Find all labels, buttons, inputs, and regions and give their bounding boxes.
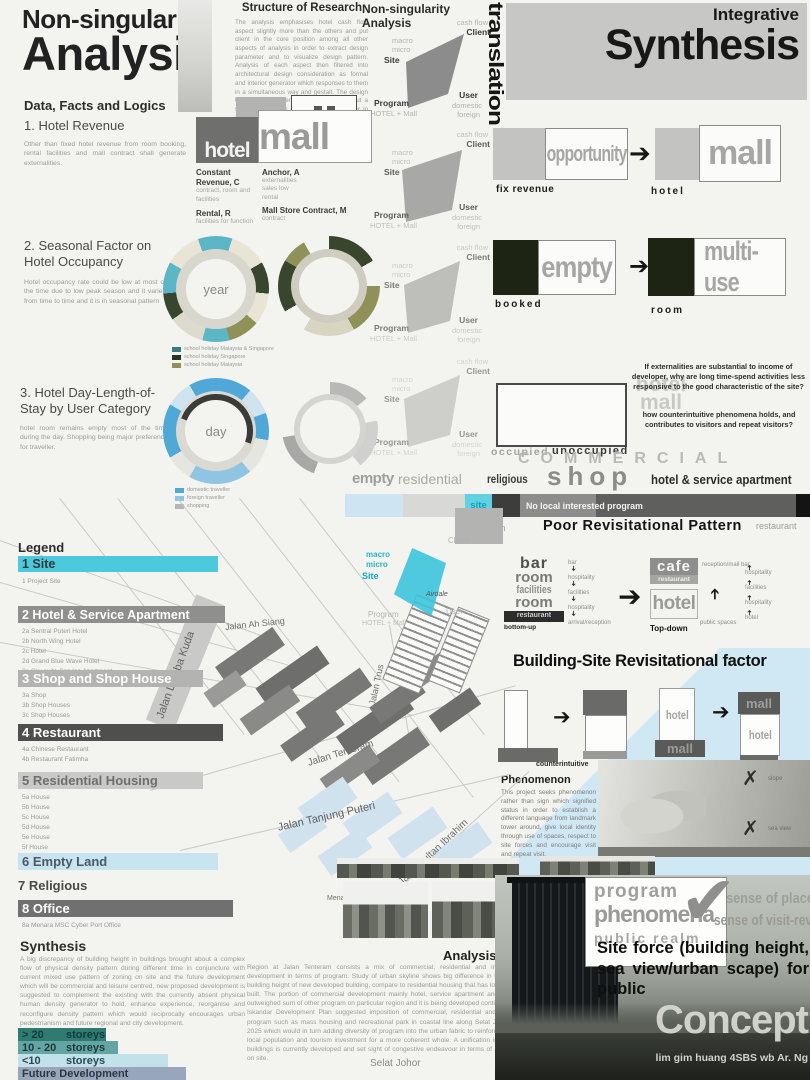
legend-sub: 5b House: [22, 803, 156, 813]
tower-diagram-1: [504, 690, 528, 750]
ns-label-foreign: foreign: [457, 222, 480, 231]
legend-row: school holiday Singapore: [172, 354, 274, 360]
hotel-stack-label: hotel: [666, 708, 689, 722]
s2-heading: 2. Seasonal Factor on Hotel Occupancy: [24, 238, 184, 271]
term-constant-revenue: Constant Revenue, C contract, room and f…: [196, 168, 256, 227]
x-label-2: sea view: [768, 826, 791, 832]
seasonal-ring-2: [278, 236, 380, 336]
arrow-icon: ➔: [712, 700, 730, 725]
legend-sub: 3b Shop Houses: [22, 701, 70, 711]
storey-range: Future Development: [22, 1068, 128, 1080]
ns-label-domestic: domestic: [452, 213, 482, 222]
ns-label-site: Site: [384, 280, 400, 290]
storey-unit: storeys: [66, 1055, 105, 1067]
ns-diagram-2: cash flow Client macro micro Site Progra…: [362, 130, 490, 236]
row1-sub-label: fix revenue: [496, 184, 554, 195]
arrow-down-icon: ➔: [570, 596, 577, 606]
day-ring-2: [282, 382, 378, 476]
legend-label: foreign traveller: [187, 495, 225, 501]
cafe-word: cafe: [650, 558, 698, 575]
ns-label-macro: macro: [392, 375, 413, 384]
ns-label-user: User: [459, 315, 478, 325]
reception-label: reception/mail bar: [702, 562, 750, 568]
term-desc: contract: [262, 215, 372, 222]
day-ring-2-hole: [294, 394, 366, 464]
hotel-block: hotel: [196, 117, 258, 163]
map-user-ghost: User: [446, 607, 463, 616]
storey-bar-over20: > 20storeys: [18, 1028, 106, 1041]
museum-curves: [616, 786, 706, 836]
tower-base-2: [583, 751, 627, 759]
legend-sub: 3c Shop Houses: [22, 711, 70, 721]
map-program-sub-ghost: HOTEL + Mall: [362, 620, 406, 627]
map-macro-label: macro: [366, 550, 390, 559]
legend-bar-restaurant: 4 Restaurant: [18, 724, 223, 741]
legend-bar-shop: 3 Shop and Shop House: [18, 670, 203, 687]
phenomenon-paragraph: This project seeks phenomenon rather tha…: [501, 789, 596, 860]
term-desc: externalities sales low rental: [262, 177, 304, 202]
ns-label-domestic: domestic: [452, 101, 482, 110]
program-bar: site No local interested program: [345, 494, 810, 517]
legend-sub: 5a House: [22, 793, 156, 803]
ns-label-cashflow: cash flow: [457, 243, 488, 252]
legend-bar-label: 6 Empty Land: [22, 854, 107, 869]
arrow-down-icon: ➔: [570, 566, 577, 576]
legend-swatch: [172, 363, 181, 368]
arrow-up-icon: ➔: [747, 591, 754, 601]
legend-bar-residential: 5 Residential Housing: [18, 772, 203, 789]
ns-label-program-sub: HOTEL + Mall: [370, 448, 417, 457]
storey-unit: storeys: [66, 1042, 105, 1054]
arrow-icon: ➔: [553, 705, 571, 730]
skyline-photo-strip: [337, 858, 519, 878]
row1-word-2: mall: [708, 134, 772, 173]
legend-row: domestic traveller: [175, 487, 230, 493]
hotel-block-label: hotel: [204, 139, 249, 163]
mall-stack-box: mall: [655, 740, 705, 757]
legend-sub: 2c Hotel: [22, 647, 112, 657]
ns-label-cashflow: cash flow: [457, 357, 488, 366]
map-client-ghost: Client: [448, 536, 468, 545]
mall-block-label: mall: [259, 120, 329, 153]
storey-bar-future: Future Development: [18, 1067, 186, 1080]
row2-sub-label: booked: [495, 299, 543, 310]
legend-sub: 2d Grand Blue Wave Hotel: [22, 657, 112, 667]
question-white-box: [496, 383, 627, 447]
legend-sub-list: 3a Shop 3b Shop Houses 3c Shop Houses: [22, 691, 70, 721]
year-ring-chart: year: [163, 236, 269, 342]
legend-label: domestic traveller: [187, 487, 230, 493]
hotel-stack-label-2: hotel: [749, 728, 772, 742]
legend-sub: 4a Chinese Restaurant: [22, 745, 89, 755]
arrow-down-icon: ➔: [570, 581, 577, 591]
legend-sub: 8a Menara MSC Cyber Port Office: [22, 921, 121, 931]
s3-paragraph: hotel room remains empty most of the tim…: [20, 424, 168, 452]
empty-word: empty: [352, 470, 394, 487]
concept-heading: Concept: [600, 998, 808, 1043]
legend-bar-label: 3 Shop and Shop House: [22, 671, 172, 686]
analysis-poster: Non-singularity Analysis Structure of Re…: [0, 0, 810, 1080]
row1-word: opportunity: [546, 141, 626, 167]
row1-word-box-2: mall: [699, 125, 781, 182]
ns-label-micro: micro: [392, 384, 410, 393]
legend-bar-label: 1 Site: [22, 557, 55, 571]
map-program-ghost: Program: [368, 610, 399, 619]
tall-building-photo: [178, 0, 212, 112]
no-local-label: No local interested program: [526, 501, 643, 511]
legend-label: school holiday Singapore: [184, 354, 245, 360]
integrative-synthesis-banner: Integrative Synthesis: [506, 3, 807, 100]
tower-cap-2: [583, 690, 627, 715]
day-ring-chart: day: [163, 378, 269, 484]
research-heading: Structure of Research: [235, 2, 369, 14]
legend-sub: 4b Restaurant Fatimha: [22, 755, 89, 765]
stack-word: facilities: [510, 585, 558, 595]
residential-word: residential: [398, 471, 462, 487]
poor-pattern-heading: Poor Revisitational Pattern: [543, 518, 742, 534]
ns-label-foreign: foreign: [457, 335, 480, 344]
arrow-down-icon: ➔: [570, 611, 577, 621]
row2-word-2: multi-use: [704, 236, 776, 298]
stack-word: room: [504, 596, 564, 610]
year-legend: school holiday Malaysia & Singapore scho…: [172, 346, 274, 370]
ns-label-micro: micro: [392, 157, 410, 166]
cafe-sub-word: restaurant: [650, 575, 698, 584]
ns-label-micro: micro: [392, 270, 410, 279]
ns-label-domestic: domestic: [452, 326, 482, 335]
ns-label-program-sub: HOTEL + Mall: [370, 109, 417, 118]
building-footprint: [429, 687, 481, 732]
hotel-word: hotel: [650, 589, 698, 619]
synthesis-heading: Synthesis: [20, 938, 86, 954]
row2-sub-label-2: room: [651, 305, 684, 316]
legend-sub: 5e House: [22, 833, 156, 843]
ns-label-program: Program: [374, 323, 409, 333]
legend-bar-label: 4 Restaurant: [22, 725, 101, 740]
mall-stack-label-2: mall: [746, 696, 772, 711]
site-force-statement: Site force (building height, sea view/ur…: [597, 938, 809, 1000]
legend-heading: Legend: [18, 540, 64, 555]
ns-label-site: Site: [384, 167, 400, 177]
sense-of-place-word: sense of place: [726, 890, 810, 907]
storey-range: 10 - 20: [22, 1042, 66, 1054]
ns-label-program: Program: [374, 98, 409, 108]
legend-swatch: [172, 355, 181, 360]
phenomenon-heading: Phenomenon: [501, 774, 571, 786]
legend-bar-label: 2 Hotel & Service Apartment: [22, 608, 190, 622]
concept-credit: lim gim huang 4SBS wb Ar. Ng: [600, 1052, 808, 1064]
map-site-label: Site: [362, 571, 379, 581]
seasonal-ring-2-hole: [291, 249, 367, 323]
bar-seg-endcap: [796, 494, 810, 517]
row1-word-box: opportunity: [545, 128, 628, 180]
legend-row: foreign traveller: [175, 495, 230, 501]
hotel-stack-box-2: hotel: [740, 714, 780, 756]
ns-label-site: Site: [384, 394, 400, 404]
legend-bar-emptyland: 6 Empty Land: [18, 853, 218, 870]
s3-heading: 3. Hotel Day-Length-of-Stay by User Cate…: [20, 385, 180, 418]
ns-label-foreign: foreign: [457, 110, 480, 119]
restaurant-word: restaurant: [756, 521, 797, 531]
tower-diagram-2: [585, 715, 627, 753]
museum-photo: [598, 760, 810, 857]
ns-label-domestic: domestic: [452, 440, 482, 449]
question-1: If externalities are substantial to inco…: [630, 362, 807, 393]
legend-label: school holiday Malaysia: [184, 362, 242, 368]
ns-label-site: Site: [384, 55, 400, 65]
stack-word: room: [504, 571, 564, 585]
term-desc: contract, room and facilities: [196, 187, 256, 204]
ns-label-macro: macro: [392, 148, 413, 157]
data-facts-heading: Data, Facts and Logics: [24, 98, 166, 113]
x-label-1: slope: [768, 776, 782, 782]
legend-bar-label: 8 Office: [22, 901, 70, 916]
ns-diagram-1: cash flow Client macro micro Site Progra…: [362, 18, 490, 124]
legend-sub: 5c House: [22, 813, 156, 823]
ns-diagram-4: cash flow Client macro micro Site Progra…: [362, 357, 490, 463]
chain-word: hotel: [745, 615, 758, 621]
mall-stack-box-2: mall: [738, 692, 780, 714]
bottomup-stack: bar room facilities room restaurant bott…: [504, 556, 564, 631]
question-2: how counterintuitive phenomena holds, an…: [634, 410, 804, 430]
ns-label-user: User: [459, 429, 478, 439]
arrow-up-icon: ➔: [747, 576, 754, 586]
term-desc: facilities for function: [196, 218, 256, 226]
row1-sub-label-2: hotel: [651, 186, 685, 197]
bar-seg-nolocal: No local interested program: [596, 494, 796, 517]
mall-stack-label: mall: [667, 741, 693, 756]
term-label: Constant Revenue, C: [196, 168, 256, 187]
legend-bar-hotel: 2 Hotel & Service Apartment: [18, 606, 225, 623]
legend-bar-office: 8 Office: [18, 900, 233, 917]
skyline-photo: [343, 882, 428, 938]
storey-unit: storeys: [66, 1029, 105, 1041]
map-micro-label: micro: [366, 560, 388, 569]
legend-sub: 1 Project Site: [22, 577, 61, 587]
arrow-up-icon: ➔: [747, 606, 754, 616]
bar-seg-emptyland: [345, 494, 403, 517]
synthesis-paragraph: A big discrepancy of building height in …: [20, 955, 245, 1028]
row2-dark-box: [493, 240, 538, 295]
term-anchor: Anchor, A externalities sales low rental…: [262, 168, 372, 222]
ns-label-macro: macro: [392, 261, 413, 270]
tower-base-1: [498, 748, 558, 762]
topdown-stack: cafe restaurant hotel Top-down: [650, 558, 698, 633]
sense-of-visit-word: sense of visit-revisit: [714, 912, 810, 929]
arrow-icon: ➔: [629, 138, 651, 169]
public-spaces-label: public spaces: [700, 620, 736, 626]
ns-label-micro: micro: [392, 45, 410, 54]
legend-bar-label: 5 Residential Housing: [22, 773, 158, 788]
down-chain: bar ➔ hospitality ➔ facilities ➔ hospita…: [568, 560, 611, 626]
storey-range: <10: [22, 1055, 66, 1067]
storey-bar-10-20: 10 - 20storeys: [18, 1041, 118, 1054]
arrow-up-icon: ➔: [705, 588, 723, 601]
bottom-up-label: bottom-up: [504, 625, 564, 631]
mall-block: mall: [258, 110, 372, 163]
legend-swatch: [175, 488, 184, 493]
ns-label-program: Program: [374, 437, 409, 447]
analysis-paragraph: Region at Jalan Tenteram consists a mix …: [247, 963, 519, 1063]
ns-diagram-3: cash flow Client macro micro Site Progra…: [362, 243, 490, 349]
legend-bar-religious: 7 Religious: [18, 878, 87, 893]
synthesis-line2: Synthesis: [506, 21, 799, 70]
term-label: Anchor, A: [262, 168, 372, 177]
x-mark-icon: ✗: [742, 766, 759, 791]
counterintuitive-label: counterintuitive: [536, 761, 589, 768]
ns-label-program-sub: HOTEL + Mall: [370, 221, 417, 230]
ghost-mall-word: mall: [630, 394, 692, 412]
shop-word: shop: [547, 461, 633, 492]
legend-sub: 5d House: [22, 823, 156, 833]
ns-label-program: Program: [374, 210, 409, 220]
legend-swatch: [172, 347, 181, 352]
place-label-airdale: Airdale: [426, 591, 448, 598]
hotel-stack-box: hotel: [659, 688, 695, 742]
row1-gray-box-2: [655, 128, 699, 180]
legend-sub: 5f House: [22, 843, 156, 853]
x-mark-icon: ✗: [742, 816, 759, 841]
legend-sub: 2a Sentral Puteri Hotel: [22, 627, 112, 637]
day-ring-label: day: [163, 378, 269, 484]
ns-label-cashflow: cash flow: [457, 130, 488, 139]
legend-bar-site: 1 Site: [18, 556, 218, 572]
ns-label-foreign: foreign: [457, 449, 480, 458]
term-label: Rental, R: [196, 209, 256, 218]
legend-row: school holiday Malaysia: [172, 362, 274, 368]
ns-label-program-sub: HOTEL + Mall: [370, 334, 417, 343]
year-ring-label: year: [163, 236, 269, 342]
translation-vertical-label: translation: [483, 2, 507, 116]
legend-label: shopping: [187, 503, 209, 509]
legend-sub-list: 4a Chinese Restaurant 4b Restaurant Fati…: [22, 745, 89, 765]
ns-label-macro: macro: [392, 36, 413, 45]
hotel-service-word: hotel & service apartment: [651, 473, 792, 487]
ns-label-client: Client: [466, 252, 490, 262]
storey-range: > 20: [22, 1029, 66, 1041]
top-down-label: Top-down: [650, 624, 698, 633]
ns-label-client: Client: [466, 139, 490, 149]
s1-heading: 1. Hotel Revenue: [24, 118, 124, 133]
storey-bar-under10: <10storeys: [18, 1054, 168, 1067]
s1-paragraph: Other than fixed hotel revenue from room…: [24, 140, 186, 168]
legend-label: school holiday Malaysia & Singapore: [184, 346, 274, 352]
row2-dark-box-2: [648, 238, 694, 296]
religious-word: religious: [487, 474, 528, 486]
arrow-icon: ➔: [629, 252, 649, 281]
arrow-up-icon: ➔: [747, 561, 754, 571]
building-site-heading: Building-Site Revisitational factor: [513, 652, 767, 671]
row2-word: empty: [542, 251, 613, 285]
row2-word-box: empty: [538, 240, 616, 295]
legend-sub: 3a Shop: [22, 691, 70, 701]
ns-label-user: User: [459, 202, 478, 212]
ns-label-user: User: [459, 90, 478, 100]
chain-word: arrival/reception: [568, 620, 611, 626]
legend-sub: 2b North Wing Hotel: [22, 637, 112, 647]
term-label: Mall Store Contract, M: [262, 206, 372, 215]
analysis-heading: Analysis: [443, 948, 496, 963]
up-chain: ➔ hospitality ➔ facilities ➔ hospitality…: [745, 562, 772, 621]
legend-row: school holiday Malaysia & Singapore: [172, 346, 274, 352]
row1-gray-box: [493, 128, 545, 180]
stack-dark-word: restaurant: [504, 611, 564, 622]
arrow-icon: ➔: [618, 580, 641, 613]
s2-paragraph: Hotel occupancy rate could be low at mos…: [24, 278, 166, 306]
street-label: Jalan Ah Siang: [224, 616, 285, 632]
row2-word-box-2: multi-use: [694, 238, 786, 296]
ns-label-client: Client: [466, 366, 490, 376]
